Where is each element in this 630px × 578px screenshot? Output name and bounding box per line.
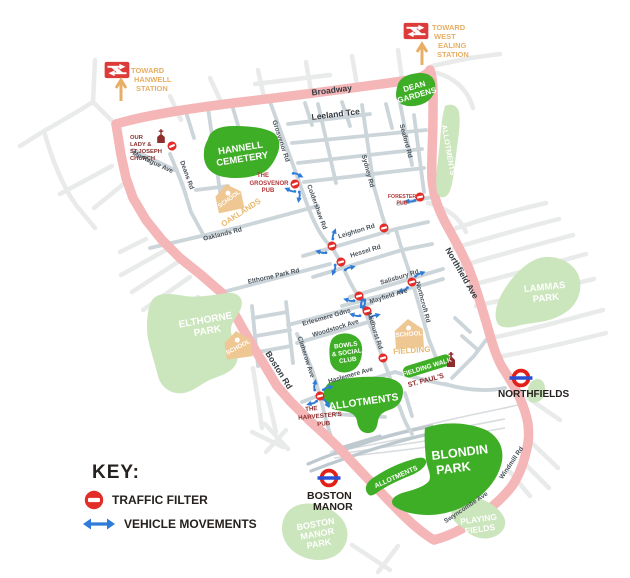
svg-text:TRAFFIC FILTER: TRAFFIC FILTER bbox=[112, 493, 208, 507]
svg-text:LADY &: LADY & bbox=[130, 142, 151, 148]
svg-text:PUB: PUB bbox=[262, 188, 275, 194]
svg-text:THE: THE bbox=[257, 173, 269, 179]
svg-text:MANOR: MANOR bbox=[313, 501, 353, 513]
svg-text:HANWELL: HANWELL bbox=[134, 75, 172, 84]
svg-text:NORTHFIELDS: NORTHFIELDS bbox=[498, 389, 569, 400]
svg-text:PUB: PUB bbox=[397, 201, 408, 207]
svg-text:STATION: STATION bbox=[437, 50, 469, 59]
svg-text:PUB: PUB bbox=[317, 420, 331, 428]
svg-text:EALING: EALING bbox=[438, 41, 467, 50]
svg-text:VEHICLE MOVEMENTS: VEHICLE MOVEMENTS bbox=[124, 517, 257, 531]
svg-text:GROSVENOR: GROSVENOR bbox=[249, 181, 289, 187]
svg-text:TOWARD: TOWARD bbox=[432, 23, 466, 32]
svg-text:STATION: STATION bbox=[136, 84, 168, 93]
svg-text:WEST: WEST bbox=[434, 32, 456, 41]
svg-text:OUR: OUR bbox=[130, 135, 144, 141]
svg-text:KEY:: KEY: bbox=[92, 462, 140, 483]
svg-text:TOWARD: TOWARD bbox=[131, 66, 165, 75]
svg-text:THE: THE bbox=[305, 405, 318, 413]
svg-text:FORESTER: FORESTER bbox=[388, 194, 416, 200]
